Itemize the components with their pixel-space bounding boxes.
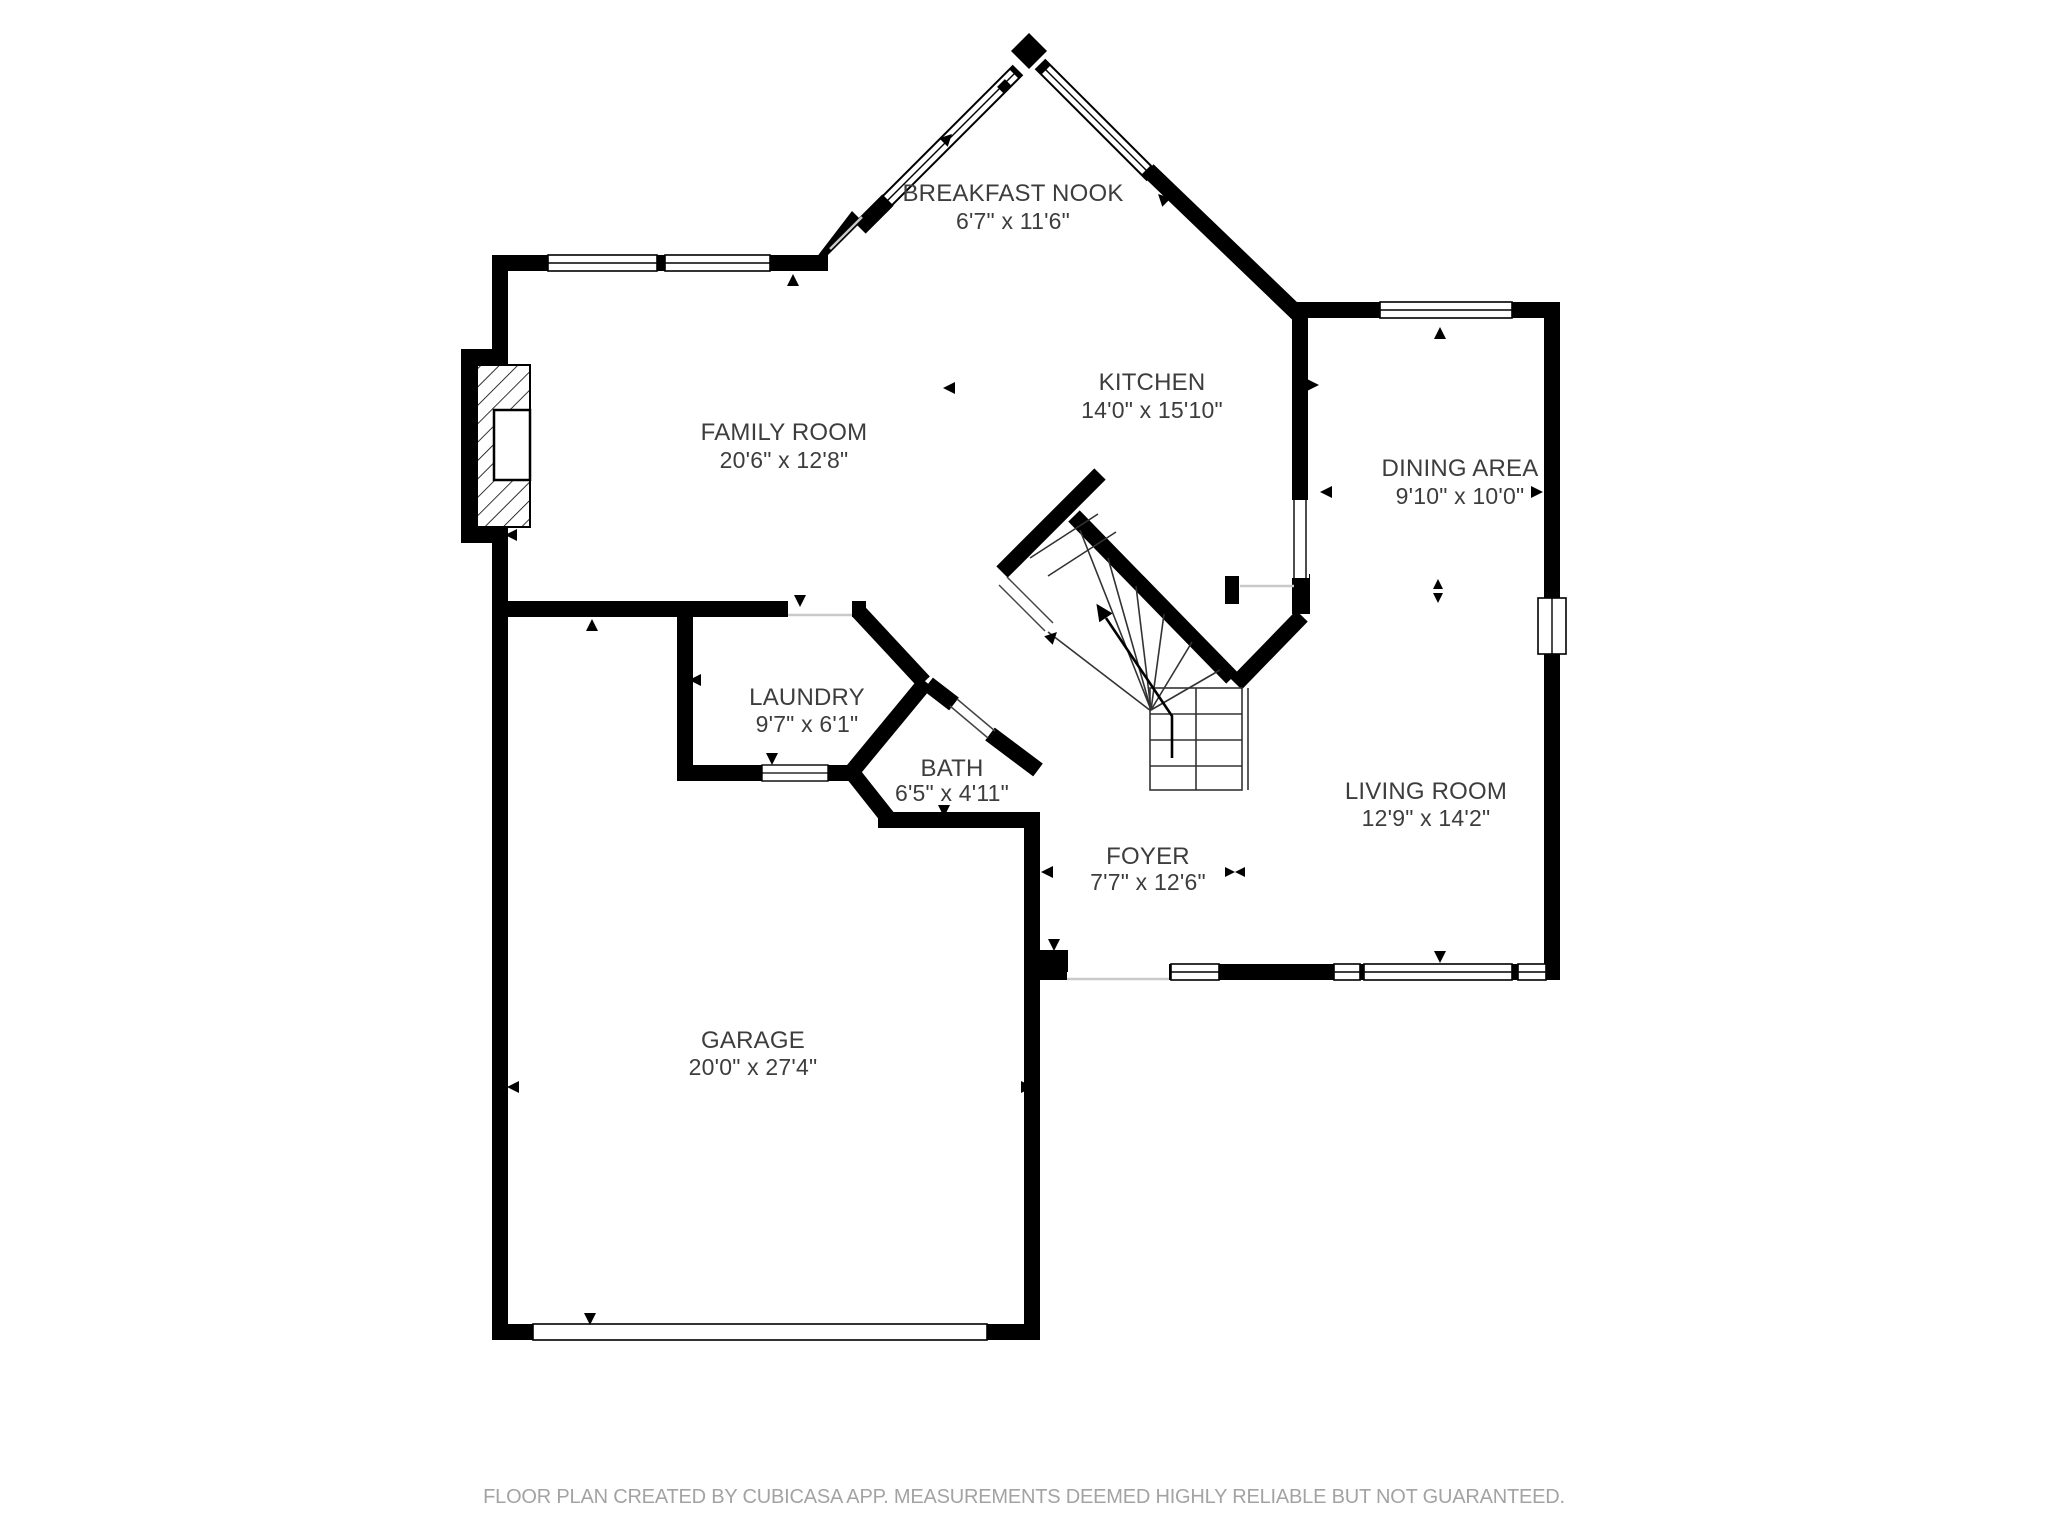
floor-plan-svg: BREAKFAST NOOK 6'7" x 11'6" KITCHEN 14'0… bbox=[0, 0, 2048, 1536]
room-dimensions: 20'6" x 12'8" bbox=[720, 447, 849, 473]
room-dimensions: 6'7" x 11'6" bbox=[956, 208, 1070, 234]
room-label-living-room: LIVING ROOM 12'9" x 14'2" bbox=[1345, 778, 1507, 831]
garage-door bbox=[533, 1324, 987, 1340]
room-name: BREAKFAST NOOK bbox=[902, 180, 1123, 207]
entry-door-stub bbox=[1040, 950, 1068, 972]
footer-credit: FLOOR PLAN CREATED BY CUBICASA APP. MEAS… bbox=[483, 1486, 1565, 1508]
room-dimensions: 9'10" x 10'0" bbox=[1396, 483, 1525, 509]
floor-plan-page: BREAKFAST NOOK 6'7" x 11'6" KITCHEN 14'0… bbox=[0, 0, 2048, 1536]
room-dimensions: 7'7" x 12'6" bbox=[1090, 869, 1206, 895]
room-dimensions: 9'7" x 6'1" bbox=[756, 711, 859, 737]
room-dimensions: 12'9" x 14'2" bbox=[1362, 805, 1491, 831]
fireplace-icon bbox=[461, 349, 530, 543]
room-dimensions: 6'5" x 4'11" bbox=[895, 780, 1009, 806]
room-dimensions: 20'0" x 27'4" bbox=[689, 1054, 818, 1080]
room-name: BATH bbox=[920, 755, 983, 782]
room-label-garage: GARAGE 20'0" x 27'4" bbox=[689, 1027, 818, 1080]
room-name: LIVING ROOM bbox=[1345, 778, 1507, 805]
alcove-post-right bbox=[1294, 574, 1310, 614]
room-dimensions: 14'0" x 15'10" bbox=[1081, 397, 1223, 423]
room-name: KITCHEN bbox=[1099, 369, 1206, 396]
room-label-foyer: FOYER 7'7" x 12'6" bbox=[1090, 843, 1206, 895]
alcove-post-left bbox=[1225, 576, 1239, 604]
room-label-laundry: LAUNDRY 9'7" x 6'1" bbox=[749, 684, 865, 737]
room-name: GARAGE bbox=[701, 1027, 805, 1054]
room-name: DINING AREA bbox=[1382, 455, 1539, 482]
room-name: FOYER bbox=[1106, 843, 1190, 870]
room-name: LAUNDRY bbox=[749, 684, 865, 711]
wall-junction bbox=[1290, 302, 1310, 318]
room-name: FAMILY ROOM bbox=[701, 419, 868, 446]
